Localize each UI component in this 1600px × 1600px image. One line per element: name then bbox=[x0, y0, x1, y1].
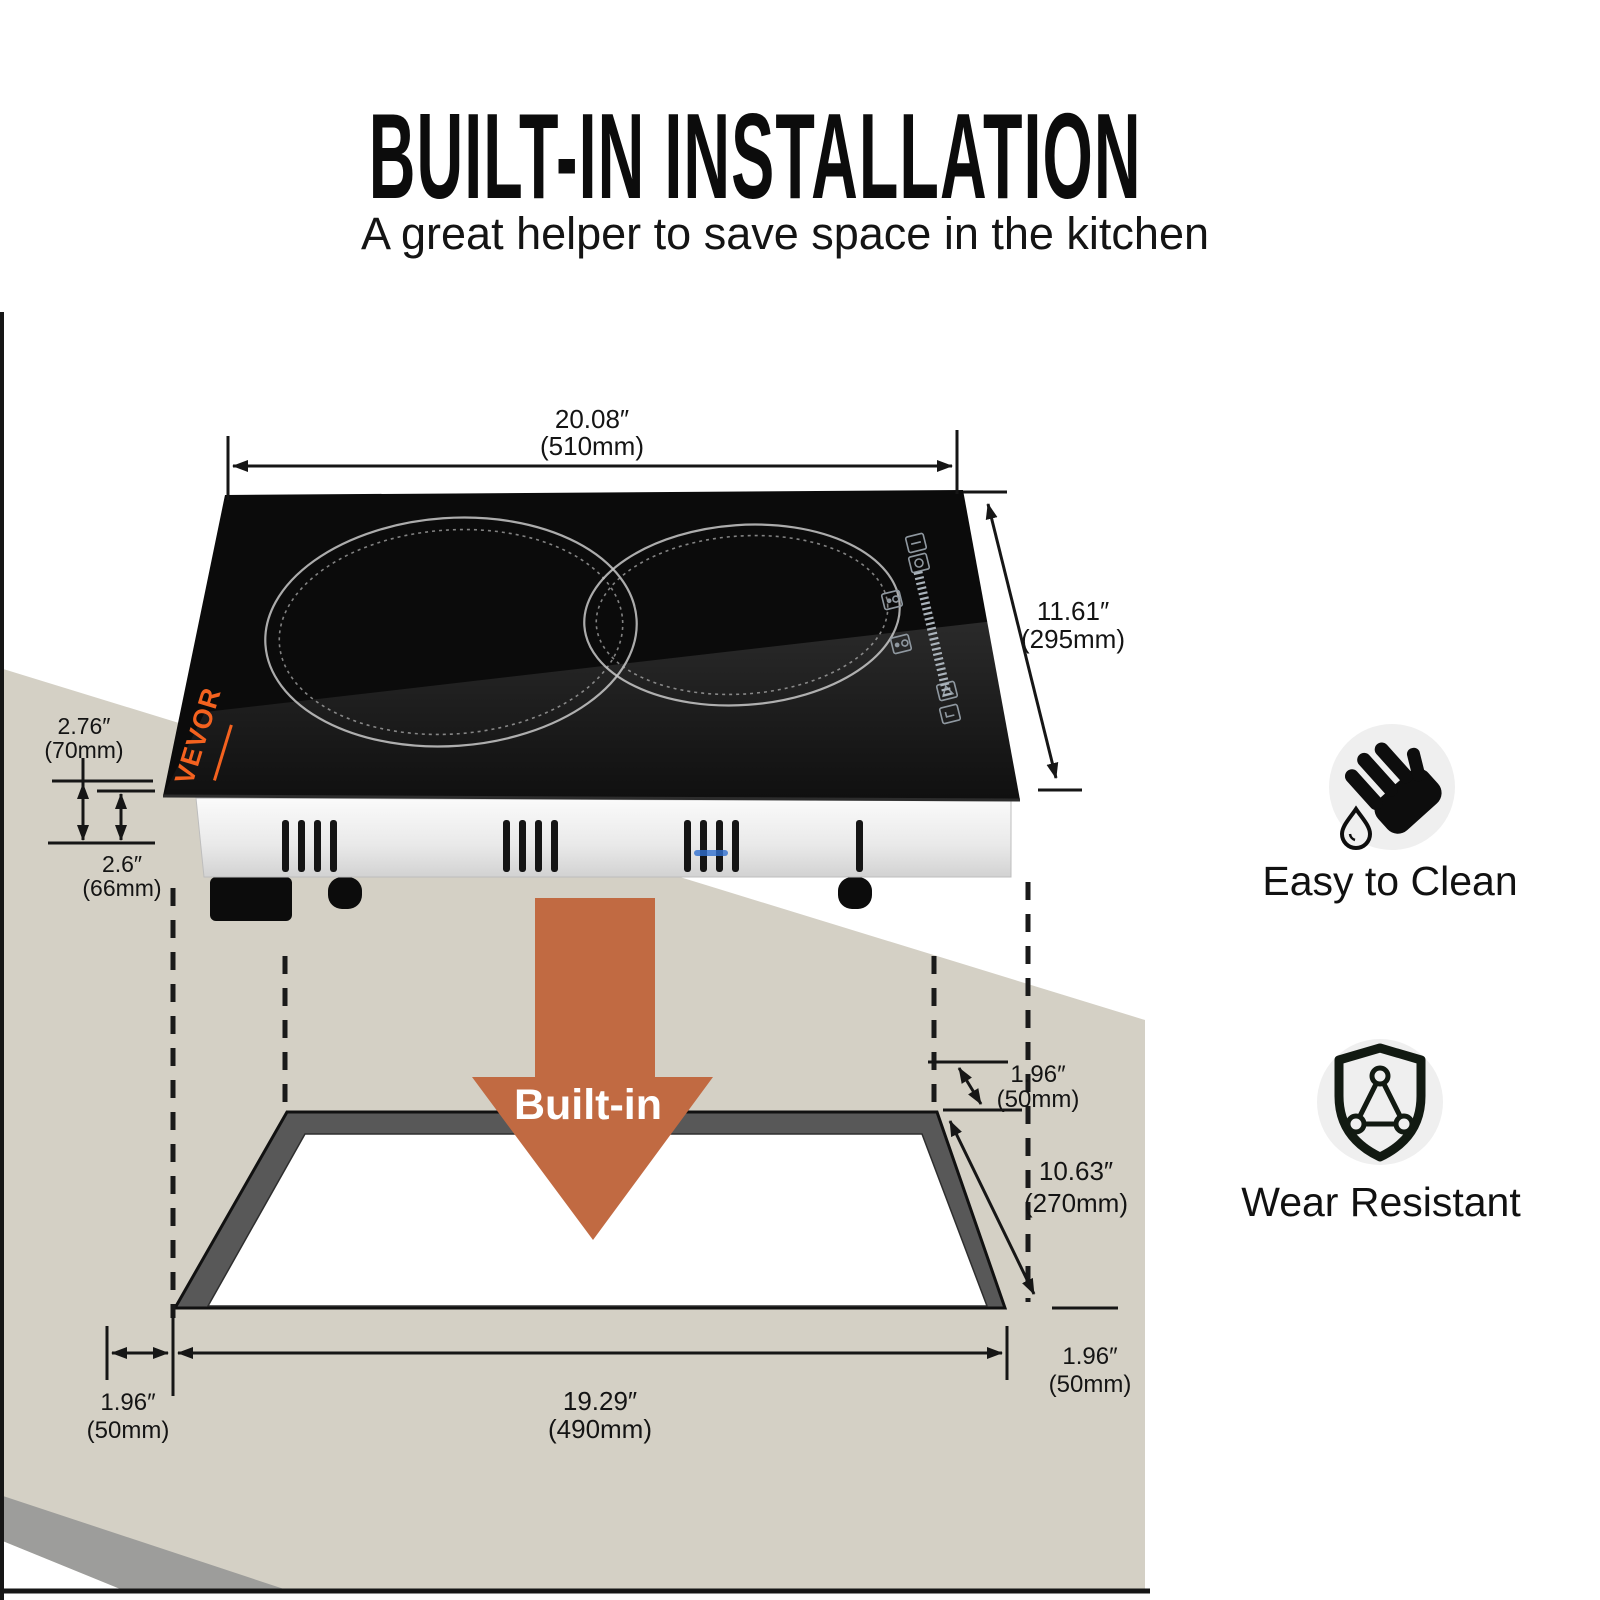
cooktop-led-glow bbox=[694, 850, 728, 856]
dim-cutdepth-in: 10.63″ bbox=[1039, 1156, 1113, 1186]
dim-htotal-in: 2.76″ bbox=[58, 713, 111, 739]
dim-cutwidth-mm: (490mm) bbox=[548, 1414, 652, 1444]
cooktop-foot bbox=[838, 877, 872, 909]
dim-cutright-in: 1.96″ bbox=[1062, 1343, 1118, 1370]
dim-cutwidth-in: 19.29″ bbox=[563, 1386, 637, 1416]
cooktop-foot bbox=[210, 877, 292, 921]
dim-width-in: 20.08″ bbox=[555, 404, 629, 434]
cooktop: VEVOR bbox=[163, 490, 1020, 921]
dim-cutdepth-mm: (270mm) bbox=[1024, 1188, 1128, 1218]
dim-depth-in: 11.61″ bbox=[1037, 596, 1109, 626]
cooktop-foot bbox=[328, 877, 362, 909]
dim-hbody-in: 2.6″ bbox=[102, 851, 142, 877]
feature-wear-resistant: Wear Resistant bbox=[1241, 1039, 1521, 1225]
feature-label: Easy to Clean bbox=[1262, 858, 1517, 904]
installation-diagram: Built-in bbox=[0, 0, 1600, 1600]
dim-htotal-mm: (70mm) bbox=[44, 737, 123, 763]
dim-cutback-mm: (50mm) bbox=[997, 1086, 1080, 1113]
dim-hbody-mm: (66mm) bbox=[82, 875, 161, 901]
dim-depth-mm: (295mm) bbox=[1021, 624, 1125, 654]
dim-cutleft-mm: (50mm) bbox=[87, 1417, 170, 1444]
feature-label: Wear Resistant bbox=[1241, 1179, 1521, 1225]
dim-cutright-mm: (50mm) bbox=[1049, 1371, 1132, 1398]
dim-cutback-in: 1.96″ bbox=[1010, 1061, 1066, 1088]
infographic-page: BUILT-IN INSTALLATION A great helper to … bbox=[0, 0, 1600, 1600]
feature-easy-to-clean: Easy to Clean bbox=[1262, 722, 1517, 904]
builtin-arrow-label: Built-in bbox=[514, 1081, 662, 1129]
dim-width-mm: (510mm) bbox=[540, 431, 644, 461]
dim-cutleft-in: 1.96″ bbox=[100, 1389, 156, 1416]
